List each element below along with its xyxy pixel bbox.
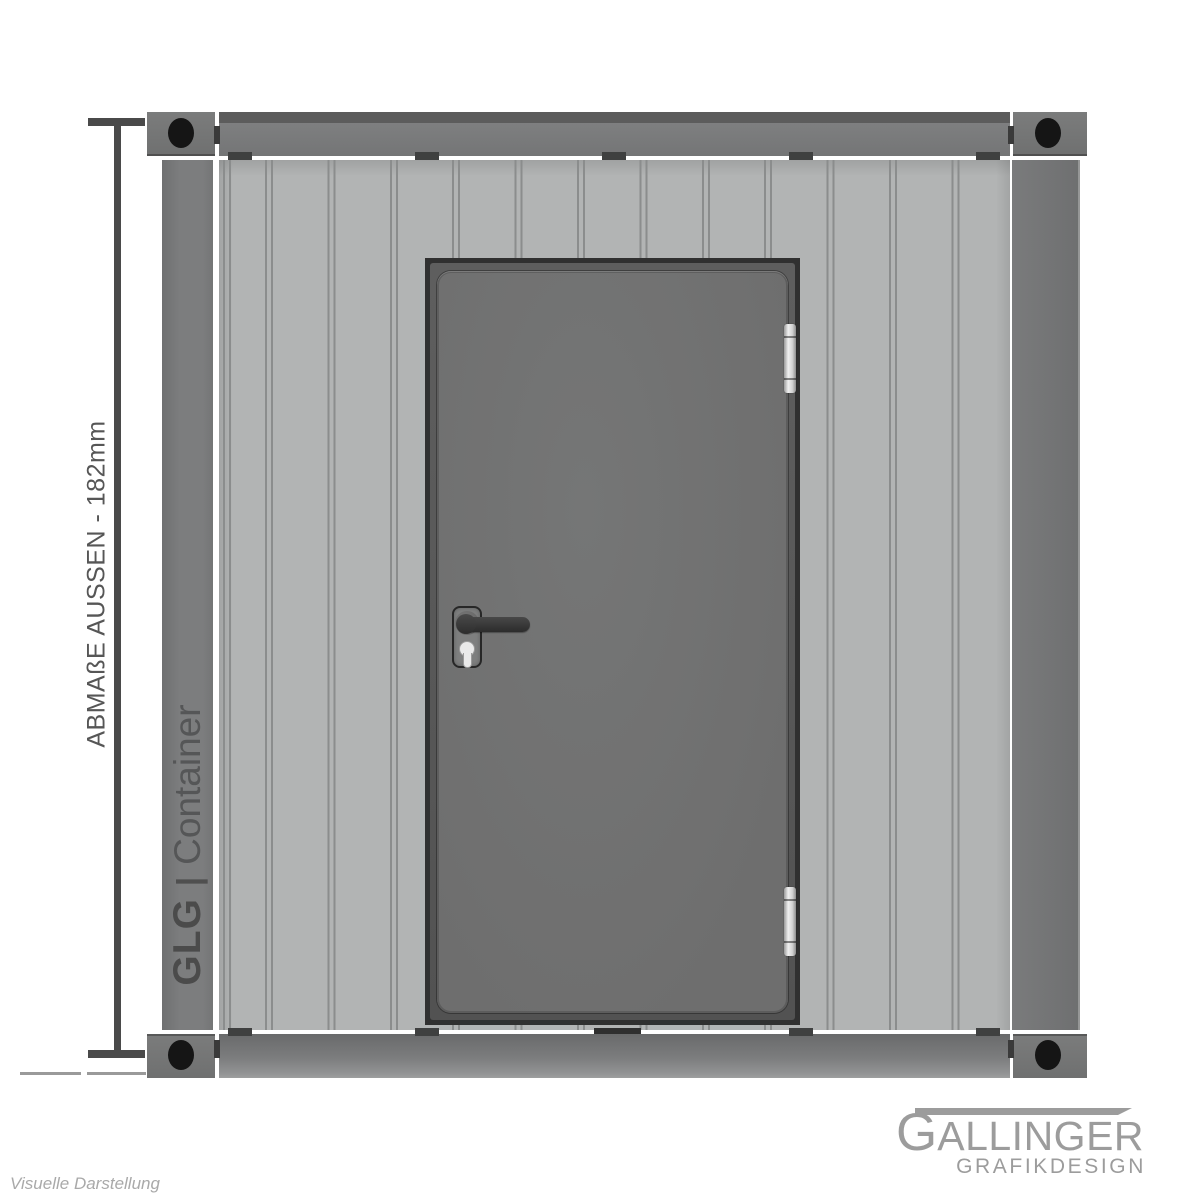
door-leaf	[437, 271, 788, 1013]
panel-joint-tab	[228, 152, 252, 160]
casting-side-aperture	[214, 1040, 220, 1058]
logo-wordmark: GALLINGER	[896, 1106, 1144, 1160]
panel-joint-tab	[976, 1028, 1000, 1036]
door-hinge-bottom	[784, 887, 796, 956]
panel-joint-tab	[415, 1028, 439, 1036]
panel-joint-tab	[789, 152, 813, 160]
container-branding: GLG|Container	[166, 704, 210, 985]
panel-joint-tab	[976, 152, 1000, 160]
dimension-cap-bottom	[88, 1050, 145, 1058]
casting-side-aperture	[1008, 126, 1014, 144]
door-hinge-top	[784, 324, 796, 393]
door	[425, 258, 800, 1025]
panel-joint-tab	[228, 1028, 252, 1036]
panel-joint-tab	[602, 152, 626, 160]
brand-primary-label: GLG	[166, 898, 209, 986]
bottom-rail	[219, 1034, 1010, 1078]
ground-line-segment	[20, 1072, 81, 1075]
logo-subtitle: GRAFIKDESIGN	[956, 1155, 1146, 1179]
logo-initial: G	[896, 1103, 937, 1162]
panel-joint-tab	[415, 152, 439, 160]
roof-edge	[219, 112, 1010, 123]
casting-hole	[1035, 1040, 1061, 1070]
container-front-illustration: ABMAßE AUSSEN - 182mm GLG|Contain	[0, 0, 1200, 1200]
casting-hole	[168, 1040, 194, 1070]
casting-hole	[168, 118, 194, 148]
brand-secondary-label: Container	[167, 704, 208, 864]
door-threshold	[594, 1028, 641, 1034]
casting-side-aperture	[1008, 1040, 1014, 1058]
ground-line-segment	[87, 1072, 146, 1075]
lock-cylinder-body	[463, 653, 472, 668]
image-caption: Visuelle Darstellung	[10, 1174, 160, 1194]
corner-post-right	[1012, 160, 1080, 1030]
dimension-label: ABMAßE AUSSEN - 182mm	[83, 420, 112, 747]
panel-joint-tab	[789, 1028, 813, 1036]
brand-separator: |	[170, 877, 207, 886]
casting-side-aperture	[214, 126, 220, 144]
dimension-line	[114, 118, 121, 1058]
door-handle-pivot	[456, 614, 476, 634]
casting-hole	[1035, 118, 1061, 148]
logo-name-rest: ALLINGER	[937, 1113, 1144, 1159]
